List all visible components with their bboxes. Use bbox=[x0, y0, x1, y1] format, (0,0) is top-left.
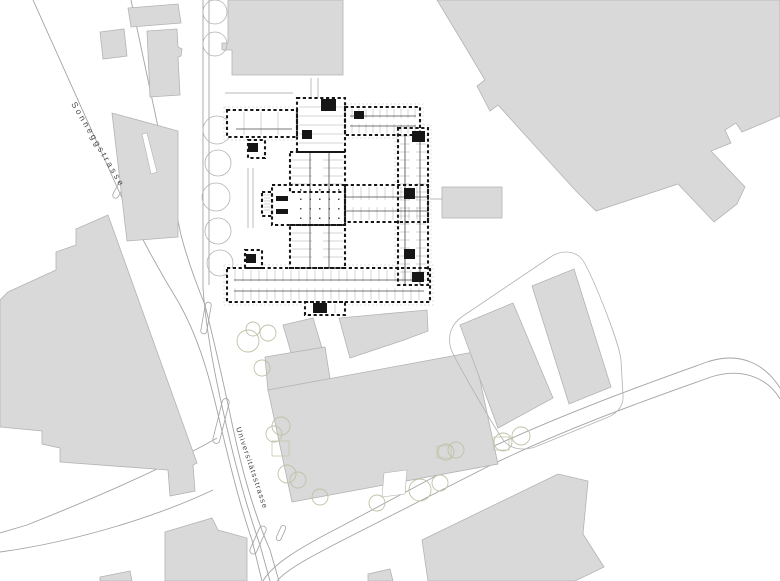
plan-column bbox=[338, 189, 340, 191]
plan-stair-core bbox=[354, 111, 364, 119]
plan-column bbox=[310, 199, 312, 201]
plan-column bbox=[310, 218, 312, 220]
plan-stair-core bbox=[302, 130, 312, 139]
plan-column bbox=[300, 199, 302, 201]
building-footprint bbox=[339, 310, 428, 358]
plan-column bbox=[310, 208, 312, 210]
plan-column bbox=[300, 189, 302, 191]
tree-icon bbox=[246, 322, 260, 336]
building-notch bbox=[382, 470, 407, 497]
tree-icon bbox=[432, 475, 448, 491]
plan-column bbox=[338, 208, 340, 210]
plan-stair-core bbox=[412, 272, 424, 282]
tree-icon bbox=[369, 495, 385, 511]
plan-stair-core bbox=[313, 303, 327, 313]
plan-column bbox=[319, 208, 321, 210]
site-plan-svg: Sonneggstrasse Universitätsstrasse bbox=[0, 0, 780, 581]
plan-column bbox=[310, 189, 312, 191]
plan-column bbox=[300, 218, 302, 220]
building-footprint bbox=[147, 29, 182, 97]
plan-stair-core bbox=[246, 254, 256, 263]
floor-plan bbox=[224, 98, 433, 315]
building-footprint bbox=[442, 187, 502, 218]
plan-stair-core bbox=[404, 249, 415, 259]
plan-stair-core bbox=[321, 99, 336, 111]
plan-stair-core bbox=[412, 131, 425, 142]
plan-column bbox=[300, 208, 302, 210]
tree-icon bbox=[409, 479, 431, 501]
plan-column bbox=[319, 199, 321, 201]
plan-stair-core bbox=[248, 143, 258, 152]
building-footprint bbox=[368, 569, 393, 581]
plan-column bbox=[329, 199, 331, 201]
plan-column bbox=[338, 199, 340, 201]
building-footprint bbox=[100, 29, 127, 59]
plan-stair-core bbox=[276, 209, 288, 214]
building-footprint bbox=[100, 571, 132, 581]
plan-wing-floor bbox=[290, 225, 345, 268]
plan-stair-core bbox=[276, 196, 288, 201]
plan-wing-floor bbox=[227, 110, 297, 137]
site-plan: Sonneggstrasse Universitätsstrasse bbox=[0, 0, 780, 581]
plan-column bbox=[329, 189, 331, 191]
tree-icon bbox=[203, 0, 227, 24]
plan-stair-core bbox=[404, 188, 415, 199]
traffic-island bbox=[275, 525, 286, 542]
plan-column bbox=[319, 189, 321, 191]
building-footprint bbox=[222, 0, 343, 75]
tree-icon bbox=[202, 183, 230, 211]
traffic-island bbox=[212, 398, 230, 444]
building-footprint bbox=[0, 215, 197, 496]
tree-icon bbox=[512, 427, 530, 445]
plan-wing-floor bbox=[398, 128, 428, 285]
tree-icon bbox=[260, 325, 276, 341]
plan-column bbox=[329, 208, 331, 210]
building-footprint bbox=[128, 4, 181, 27]
building-footprint bbox=[422, 474, 604, 581]
building-footprint bbox=[165, 518, 247, 581]
plan-column bbox=[319, 218, 321, 220]
plan-column bbox=[329, 218, 331, 220]
plan-column bbox=[338, 218, 340, 220]
